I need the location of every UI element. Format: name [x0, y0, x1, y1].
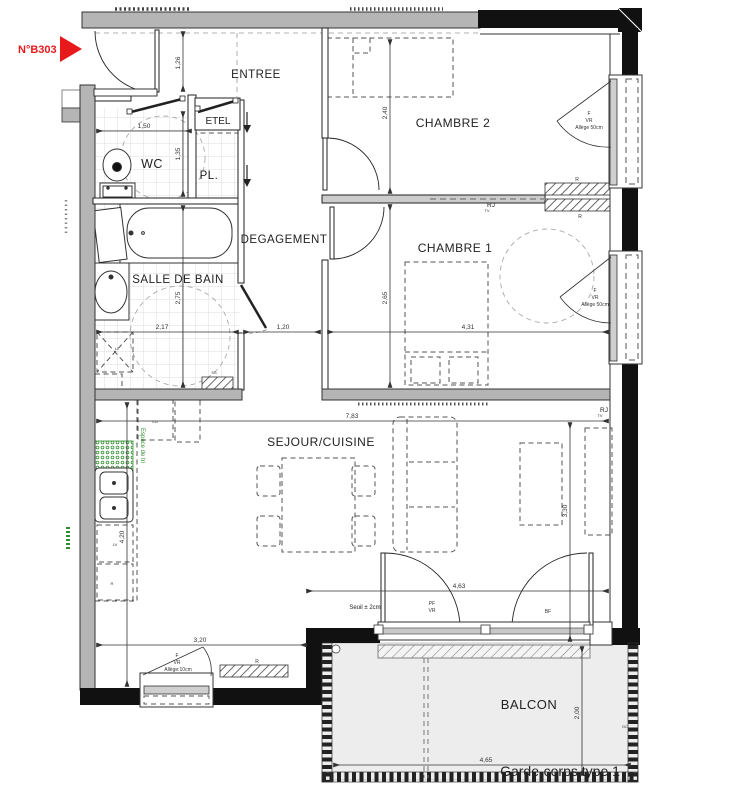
floor-plan-drawing: N°B303 ENTREE WC PL. ETEL CHAMBRE 2 CHAM… [0, 0, 731, 800]
label-balcon: BALCON [501, 697, 557, 712]
r-wall-bottom: R [578, 214, 582, 220]
bed-chambre1 [405, 262, 488, 385]
tv-unit [585, 428, 612, 535]
label-sejour-cuisine: SEJOUR/CUISINE [267, 435, 375, 449]
dim-degagement-width: 1,20 [277, 324, 290, 331]
fridge [97, 564, 133, 600]
window-sejour-vr: VR [174, 660, 181, 666]
window-c2-allege: Allège 50cm [575, 125, 603, 131]
floor-plan-sheet: N°B303 ENTREE WC PL. ETEL CHAMBRE 2 CHAM… [0, 0, 731, 800]
dim-sejour-width: 7,83 [346, 413, 359, 420]
espace-tri-note: Espace de tri [139, 428, 145, 463]
lv-tag: LV [113, 542, 118, 547]
dim-wc-depth: 1,35 [175, 147, 182, 160]
window-sejour-type: F [175, 653, 178, 659]
chambre1-door-leaf [330, 207, 334, 259]
label-wc: WC [141, 157, 163, 171]
label-etel: ETEL [205, 116, 230, 127]
fridge-tag: R [111, 581, 114, 586]
bathroom-cabinet [93, 207, 127, 262]
dim-cuisine-depth: 4,20 [119, 530, 126, 543]
dim-entry-depth: 1,26 [175, 56, 182, 69]
bay-door-left-leaf [381, 553, 385, 628]
bf-tag: BF [545, 609, 551, 615]
window-c2-type: F [587, 111, 590, 117]
cu-tag: CU [152, 419, 158, 424]
label-chambre1: CHAMBRE 1 [418, 241, 493, 255]
unit-number: N°B303 [18, 44, 57, 56]
towel-radiator [202, 377, 233, 390]
coffee-table [520, 443, 562, 525]
window-chambre2 [557, 75, 642, 188]
r-wall-top: R [575, 177, 579, 183]
dim-fenetre-width: 3,20 [194, 637, 207, 644]
label-chambre2: CHAMBRE 2 [416, 116, 491, 130]
dim-sdb-depth: 2,75 [175, 291, 182, 304]
label-salle-de-bain: SALLE DE BAIN [132, 274, 224, 286]
sofa [393, 417, 457, 552]
window-c1-type: F [593, 288, 596, 294]
label-entree: ENTREE [231, 69, 281, 81]
dim-balcon-width: 4,65 [480, 757, 493, 764]
bay-door-right-leaf [589, 553, 593, 628]
unit-arrow-icon [60, 36, 82, 62]
window-sejour-allege: Allège:10cm [164, 667, 192, 673]
dim-chambre1-depth: 2,65 [382, 291, 389, 304]
window-c2-vr: VR [586, 118, 593, 124]
hatched-wall-sections [202, 183, 610, 677]
label-pl: PL. [200, 170, 219, 182]
gc-tag: GC [622, 724, 628, 729]
dim-chambre2-depth: 2,40 [382, 106, 389, 119]
ss-tag: SS [211, 370, 217, 375]
unit-marker: N°B303 [18, 36, 82, 62]
label-degagement: DEGAGEMENT [241, 234, 328, 246]
dim-baie-width: 4,63 [453, 583, 466, 590]
bay-vr: VR [429, 608, 436, 614]
dim-sejour-depth: 3,30 [562, 504, 569, 517]
dim-sdb-width: 2,17 [156, 324, 169, 331]
chambre2-door-leaf [323, 138, 327, 190]
rj-outlet-1-tv: TV [484, 208, 489, 213]
ll-tag: LL [115, 346, 120, 351]
bathroom-door-leaf [241, 285, 266, 328]
bay-sill [374, 622, 593, 640]
dining-table [282, 458, 355, 552]
entry-threshold [94, 89, 157, 96]
r-wall-sejour: R [255, 659, 259, 665]
dim-chambre1-width: 4,31 [462, 324, 475, 331]
window-c1-allege: Allège 50cm [581, 302, 609, 308]
rj-outlet-2-tv: TV [597, 413, 602, 418]
entry-door-leaf [155, 30, 159, 92]
dim-balcon-depth: 2,00 [574, 706, 581, 719]
dim-wc-width: 1,50 [138, 123, 151, 130]
seuil-note: Seuil ± 2cm [349, 605, 380, 611]
window-c1-vr: VR [592, 295, 599, 301]
bay-type: PF [429, 601, 435, 607]
label-garde-corps: Garde-corps type 1 [500, 763, 620, 779]
